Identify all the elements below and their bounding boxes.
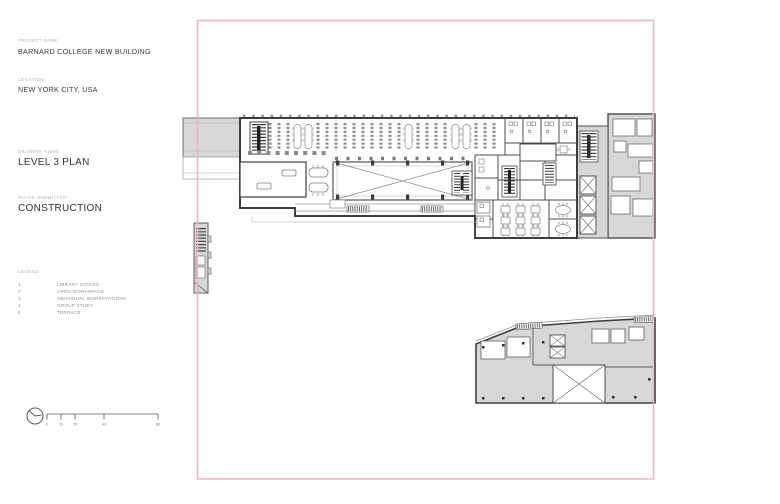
connector-core — [577, 126, 608, 238]
adjacent-building-southwest — [194, 223, 211, 293]
main-building — [240, 116, 577, 238]
adjacent-building-southeast — [476, 315, 655, 403]
stair-core-west — [502, 166, 517, 197]
floor-plan — [0, 0, 780, 504]
atrium-void — [333, 161, 472, 201]
red-border — [198, 21, 654, 480]
terrace-room — [240, 162, 306, 197]
stair-atrium-east — [452, 171, 472, 195]
bridge-west — [183, 118, 240, 179]
stair-core-center — [543, 163, 556, 185]
stair-west — [250, 122, 268, 154]
drawing-sheet: PROJECT NAME BARNARD COLLEGE NEW BUILDIN… — [0, 0, 780, 504]
